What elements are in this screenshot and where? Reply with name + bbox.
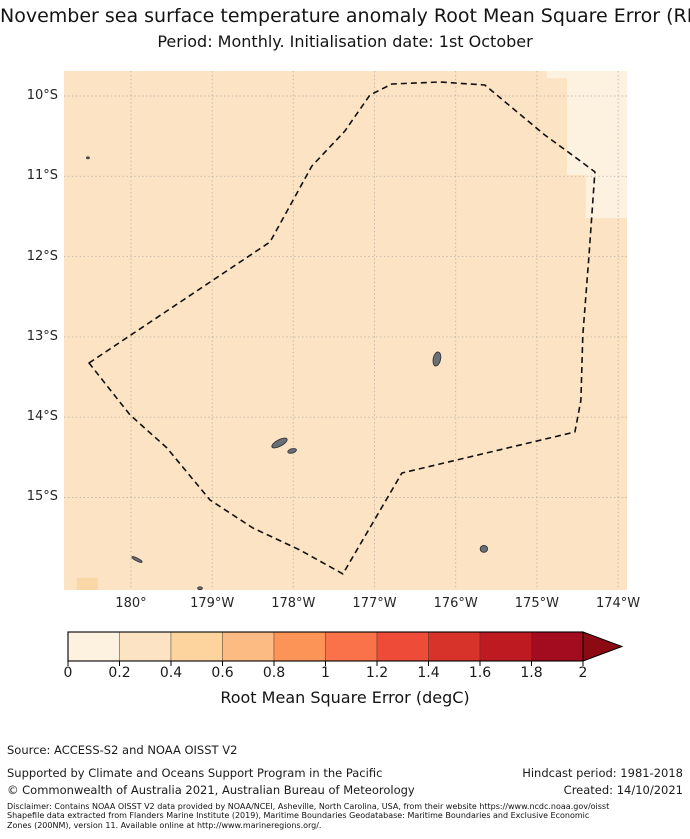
colorbar-bin (326, 632, 378, 661)
source-text: Source: ACCESS-S2 and NOAA OISST V2 (7, 743, 237, 757)
colorbar-bin (120, 632, 172, 661)
colorbar-extend-arrow (583, 632, 622, 661)
colorbar-bin (68, 632, 120, 661)
disclaimer-line: Disclaimer: Contains NOAA OISST V2 data … (7, 802, 690, 811)
figure: November sea surface temperature anomaly… (0, 0, 690, 839)
island (86, 157, 89, 159)
rmse-cell (77, 578, 98, 590)
colorbar-bin (171, 632, 223, 661)
x-tick-label: 178°W (261, 596, 325, 612)
colorbar-tick-label: 1.6 (456, 665, 504, 681)
x-tick-label: 179°W (180, 596, 244, 612)
colorbar-bin (377, 632, 429, 661)
island (480, 546, 487, 553)
chart-title: November sea surface temperature anomaly… (0, 4, 690, 29)
x-tick-label: 176°W (424, 596, 488, 612)
chart-subtitle: Period: Monthly. Initialisation date: 1s… (0, 31, 690, 52)
hindcast-period-text: Hindcast period: 1981-2018 (522, 766, 683, 780)
y-tick-label: 12°S (12, 249, 58, 265)
y-tick-label: 14°S (12, 409, 58, 425)
created-date-text: Created: 14/10/2021 (564, 783, 683, 797)
colorbar-tick-label: 2 (559, 665, 607, 681)
x-tick-label: 180° (99, 596, 163, 612)
colorbar-bin (429, 632, 481, 661)
colorbar-tick-label: 1.8 (508, 665, 556, 681)
colorbar-label: Root Mean Square Error (degC) (0, 688, 690, 707)
disclaimer-line: Shapefile data extracted from Flanders M… (7, 811, 690, 820)
supported-text: Supported by Climate and Oceans Support … (7, 766, 382, 780)
colorbar-bin (274, 632, 326, 661)
colorbar (0, 626, 690, 668)
x-tick-label: 175°W (505, 596, 569, 612)
y-tick-label: 13°S (12, 329, 58, 345)
colorbar-tick-label: 1 (302, 665, 350, 681)
x-tick-label: 174°W (586, 596, 650, 612)
y-tick-label: 10°S (12, 88, 58, 104)
disclaimer-line: Zones (200NM), version 11. Available onl… (7, 821, 690, 830)
y-tick-label: 11°S (12, 168, 58, 184)
colorbar-tick-label: 0.4 (147, 665, 195, 681)
colorbar-tick-label: 1.4 (405, 665, 453, 681)
colorbar-tick-label: 0.6 (199, 665, 247, 681)
map-panel (64, 71, 627, 590)
colorbar-tick-label: 0 (44, 665, 92, 681)
map-background (64, 71, 627, 590)
colorbar-tick-label: 0.2 (96, 665, 144, 681)
colorbar-bin (223, 632, 275, 661)
disclaimer: Disclaimer: Contains NOAA OISST V2 data … (7, 802, 690, 830)
y-tick-label: 15°S (12, 489, 58, 505)
island (198, 587, 203, 590)
colorbar-tick-label: 0.8 (250, 665, 298, 681)
colorbar-bin (532, 632, 584, 661)
colorbar-tick-label: 1.2 (353, 665, 401, 681)
colorbar-bin (480, 632, 532, 661)
x-tick-label: 177°W (343, 596, 407, 612)
copyright-text: © Commonwealth of Australia 2021, Austra… (7, 783, 415, 797)
